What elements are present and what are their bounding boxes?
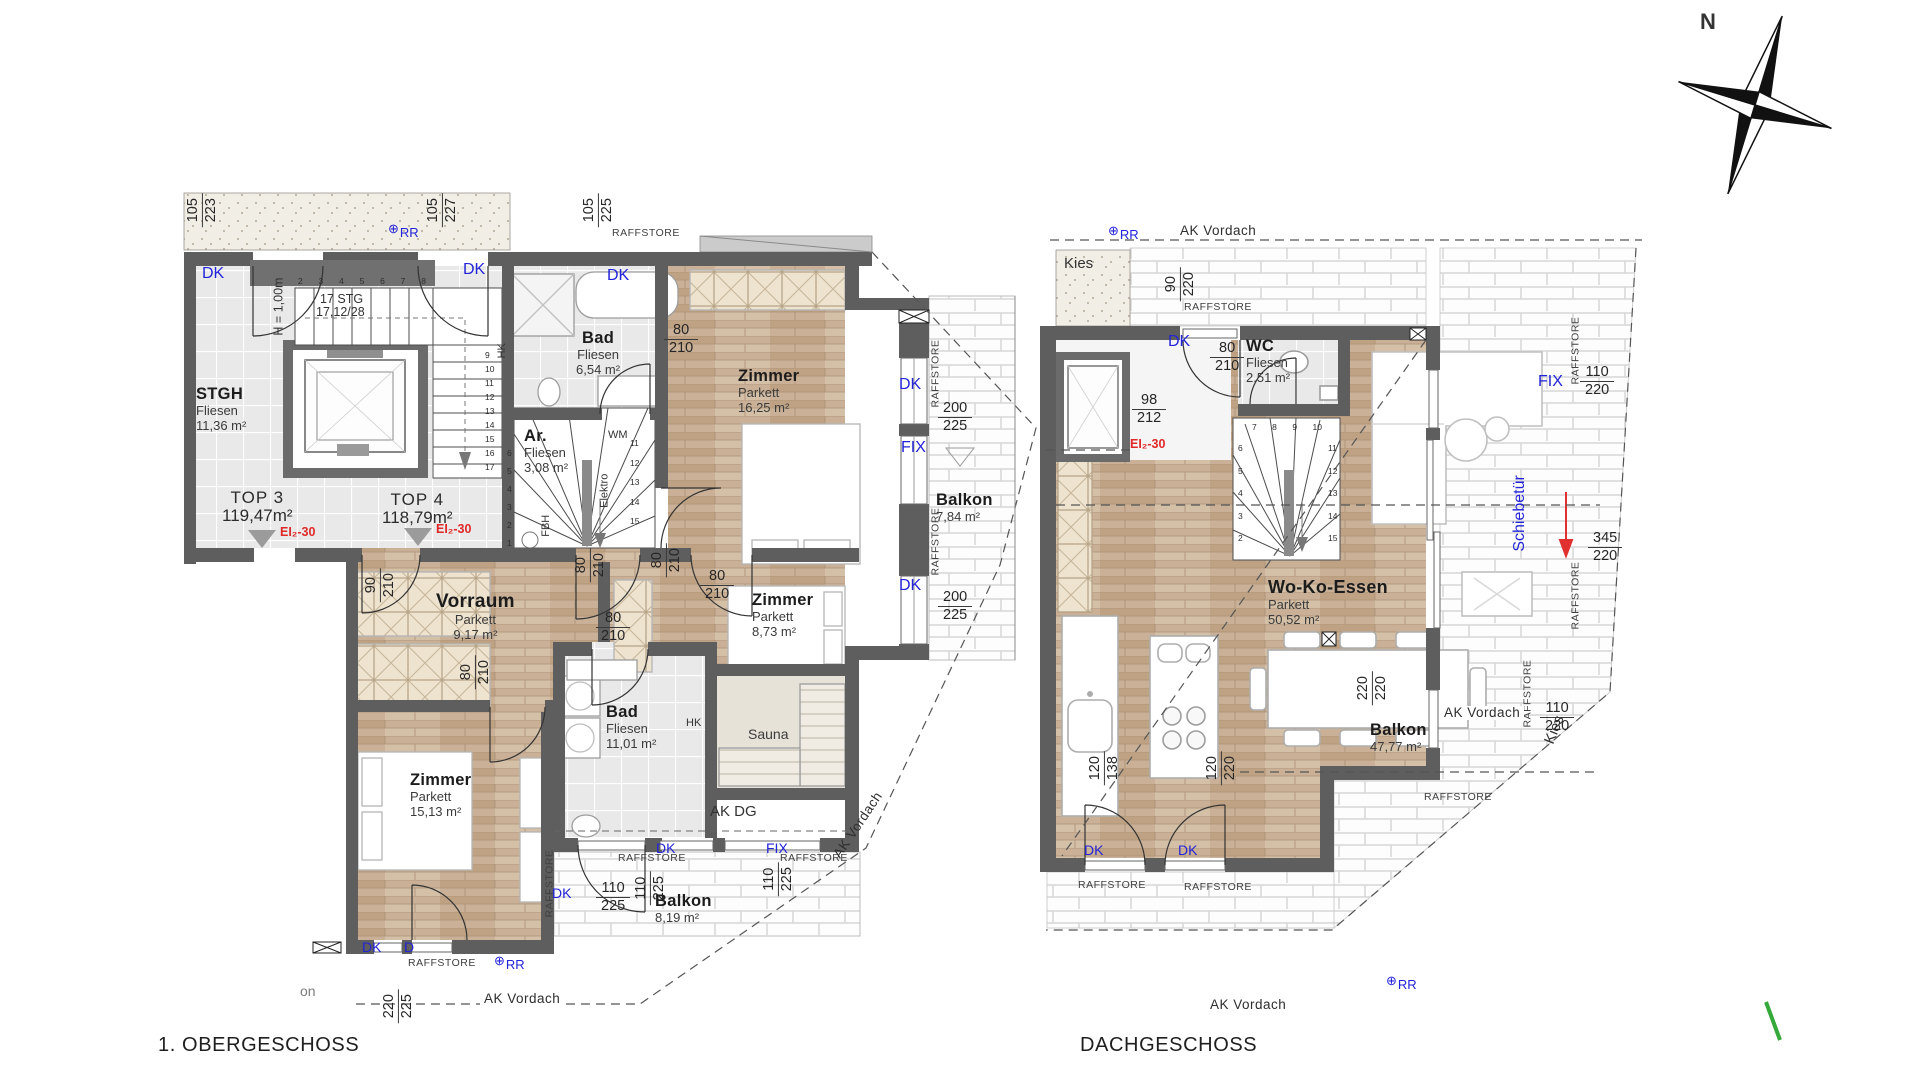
dim-pair: 80210 (700, 568, 734, 602)
door-label-d: D (404, 940, 414, 955)
room-label-vorraum: Vorraum Parkett 9,17 m² (436, 592, 515, 641)
dim-pair: 80210 (458, 655, 492, 689)
room-label-zimmer3: Zimmer Parkett 15,13 m² (410, 772, 471, 819)
stair-number: 9 (485, 350, 490, 360)
raffstore-label: RAFFSTORE (1184, 882, 1252, 893)
compass-north-label: N (1700, 10, 1716, 33)
stair-number: 8 (1272, 422, 1277, 432)
dim-pair: 80210 (596, 610, 630, 644)
stair-number: 10 (1313, 422, 1322, 432)
hk-label: HK (686, 718, 701, 730)
survey-point-icon: ⊕ (494, 954, 505, 968)
vanity-bad2 (567, 660, 637, 680)
stair-number: 13 (1328, 488, 1337, 498)
ak-vordach-label: AK Vordach (1206, 998, 1290, 1012)
stair-number: 2 (507, 520, 512, 530)
window-label-dk: DK (899, 578, 921, 595)
dim-pair: 200225 (938, 589, 972, 623)
rr-point: ⊕RR (1386, 978, 1417, 992)
stair-number: 13 (485, 406, 494, 416)
toilet-bad1 (538, 378, 560, 406)
sliding-door-label: Schiebetür (1512, 475, 1529, 552)
closet-zimmer3 (520, 758, 542, 828)
stair-number: 7 (1252, 422, 1257, 432)
og-spiral-numbers-right: 1112131415 (630, 438, 639, 526)
green-revision-mark (1766, 1002, 1780, 1040)
stair-number: 15 (1328, 533, 1337, 543)
dim-pair: 110220 (1540, 700, 1574, 734)
window-label-dk: DK (899, 377, 921, 394)
raffstore-label: RAFFSTORE (544, 850, 555, 918)
window-label-dk: DK (607, 268, 629, 285)
og-stair-numbers-right: 91011121314151617 (485, 350, 494, 472)
raffstore-label: RAFFSTORE (618, 853, 686, 864)
survey-point-icon: ⊕ (388, 222, 399, 236)
toilet-bad2 (572, 815, 600, 837)
sauna-bench (800, 684, 845, 786)
dim-pair: 105225 (581, 193, 615, 227)
sliding-door-panel (1434, 532, 1440, 628)
stair-number: 11 (630, 438, 639, 448)
side-table-round (1445, 419, 1487, 461)
dim-pair: 98212 (1132, 392, 1166, 426)
stair-number: 6 (507, 448, 512, 458)
raffstore-label: RAFFSTORE (1424, 792, 1492, 803)
room-label-zimmer2: Zimmer Parkett 8,73 m² (752, 592, 813, 639)
dg-stair-numbers-top: 78910 (1252, 422, 1322, 432)
survey-point-icon: ⊕ (1386, 974, 1397, 988)
raffstore-label: RAFFSTORE (1570, 562, 1581, 630)
dim-pair: 220220 (1355, 671, 1389, 705)
raffstore-label: RAFFSTORE (408, 958, 476, 969)
stair-number: 9 (1292, 422, 1297, 432)
stair-number: 12 (630, 458, 639, 468)
island-sink (1158, 644, 1182, 662)
stair-number: 14 (630, 497, 639, 507)
ak-vordach-label: AK Vordach (1176, 224, 1260, 238)
room-label-wke: Wo-Ko-Essen Parkett 50,52 m² (1268, 578, 1388, 626)
stair-number: 4 (507, 484, 512, 494)
og-elevator (283, 340, 428, 478)
room-label-balkon-dg: Balkon 47,77 m² (1370, 722, 1427, 754)
kitchen-sink (1068, 700, 1112, 752)
dim-pair: 345220 (1588, 530, 1622, 564)
island-sink (1186, 644, 1210, 662)
window-label-dk: DK (202, 266, 224, 283)
dim-pair: 220225 (381, 989, 415, 1023)
washer-label: WM (608, 430, 628, 442)
stair-number: 4 (1238, 488, 1243, 498)
window-label-dk: DK (1168, 334, 1190, 351)
stair-number: 15 (485, 434, 494, 444)
dg-title: DACHGESCHOSS (1080, 1035, 1257, 1056)
dim-pair: 80210 (573, 548, 607, 582)
og-stipple-strip (184, 193, 510, 250)
vanity-bad1 (598, 376, 656, 406)
room-label-stgh: STGH Fliesen 11,36 m² (196, 386, 246, 433)
room-label-wc: WC Fliesen 2,51 m² (1246, 338, 1290, 385)
stair-number: 5 (360, 276, 365, 286)
pillow (824, 592, 842, 626)
stair-number: 17 (485, 462, 494, 472)
stair-number: 11 (1328, 443, 1337, 453)
dim-pair: 90220 (1163, 267, 1197, 301)
rr-point: ⊕RR (1108, 228, 1139, 242)
og-spiral-numbers-left: 654321 (507, 448, 512, 548)
cropped-balkon-label: on (300, 984, 316, 999)
dg-stair-numbers-right: 1112131415 (1328, 443, 1337, 543)
elektro-label: Elektro (599, 474, 611, 508)
dg-stair-numbers-left: 65432 (1238, 443, 1243, 543)
stair-number: 12 (1328, 466, 1337, 476)
stair-number: 11 (485, 378, 494, 388)
pillow (824, 630, 842, 664)
dim-pair: 110225 (633, 871, 667, 905)
dim-pair: 200225 (938, 400, 972, 434)
stair-number: 4 (339, 276, 344, 286)
side-table-round-small (1485, 417, 1509, 441)
raffstore-label: RAFFSTORE (1078, 880, 1146, 891)
stair-number: 5 (1238, 466, 1243, 476)
stair-dim-note: 17,12/28 (316, 306, 365, 319)
window-label-dk: DK (362, 940, 381, 955)
room-label-bad2: Bad Fliesen 11,01 m² (606, 704, 656, 751)
stair-number: 3 (1238, 511, 1243, 521)
room-label-zimmer1: Zimmer Parkett 16,25 m² (738, 368, 799, 415)
stair-number: 12 (485, 392, 494, 402)
stair-number: 14 (485, 420, 494, 430)
stair-number: 1 (507, 538, 512, 548)
stair-number: 2 (1238, 533, 1243, 543)
stair-number: 3 (507, 502, 512, 512)
ak-vordach-label: AK Vordach (480, 992, 564, 1006)
sliding-door-panel (1427, 440, 1433, 540)
dim-pair: 80210 (1210, 340, 1244, 374)
dim-pair: 80210 (664, 322, 698, 356)
dim-pair: 105227 (425, 193, 459, 227)
sauna-bench (719, 748, 800, 786)
dim-pair: 80210 (649, 543, 683, 577)
stair-number: 14 (1328, 511, 1337, 521)
dim-pair: 90210 (363, 568, 397, 602)
fire-rating-label: EI₂-30 (280, 526, 315, 539)
ak-dg-label: AK DG (710, 804, 757, 820)
raffstore-label: RAFFSTORE (612, 228, 680, 239)
stair-number: 8 (421, 276, 426, 286)
stair-number: 3 (319, 276, 324, 286)
fire-rating-label: EI₂-30 (1130, 438, 1165, 451)
spiral-newel (582, 460, 592, 546)
floorplan-canvas (0, 0, 1920, 1080)
window-label-fix: FIX (1538, 374, 1563, 391)
raffstore-label: RAFFSTORE (1184, 302, 1252, 313)
dim-pair: 105223 (185, 193, 219, 227)
stair-number: 13 (630, 477, 639, 487)
rr-point: ⊕RR (388, 226, 419, 240)
kies-label: Kies (1064, 256, 1093, 272)
hk-label: HK (497, 343, 509, 358)
dim-pair: 110220 (1580, 364, 1614, 398)
window-label-dk: DK (1084, 843, 1103, 858)
pillow (362, 812, 382, 860)
fbh-label: FBH (541, 515, 553, 537)
room-label-balkon1: Balkon 7,84 m² (936, 492, 993, 524)
raffstore-label: RAFFSTORE (930, 508, 941, 576)
wardrobe-dg (1058, 456, 1092, 612)
rr-point: ⊕RR (494, 958, 525, 972)
survey-point-icon: ⊕ (1108, 224, 1119, 238)
room-label-sauna: Sauna (748, 726, 788, 742)
pillow (362, 758, 382, 806)
parapet-height-note: H = 1,00m (272, 278, 285, 336)
stair-number: 6 (380, 276, 385, 286)
fire-rating-label: EI₂-30 (436, 523, 471, 536)
stair-number: 15 (630, 516, 639, 526)
window-label-fix: FIX (901, 440, 926, 457)
raffstore-label: RAFFSTORE (930, 340, 941, 408)
stair-number: 2 (298, 276, 303, 286)
dim-pair: 110225 (596, 880, 630, 914)
og-stair-numbers-top: 2345678 (298, 276, 426, 286)
window-label-dk: DK (1178, 843, 1197, 858)
stair-number: 6 (1238, 443, 1243, 453)
ak-vordach-label: AK Vordach (1440, 706, 1524, 720)
dg-elevator (1056, 352, 1130, 462)
unit-label-top3: TOP 3 119,47m² (222, 489, 293, 525)
window-label-dk: DK (463, 262, 485, 279)
wardrobe-zimmer1 (690, 270, 845, 310)
elevator-door (327, 350, 383, 358)
room-label-bad1: Bad Fliesen 6,54 m² (576, 330, 620, 377)
sink-wc (1320, 386, 1338, 400)
compass-icon (1651, 0, 1858, 217)
stair-number: 5 (507, 466, 512, 476)
elevator-motor (337, 444, 369, 456)
dim-pair: 110225 (761, 862, 795, 896)
dim-pair: 120220 (1204, 751, 1238, 785)
stair-number: 16 (485, 448, 494, 458)
closet-zimmer3 (520, 832, 542, 902)
dim-pair: 120138 (1087, 751, 1121, 785)
stair-number: 10 (485, 364, 494, 374)
stair-number: 7 (401, 276, 406, 286)
floorplan-sheet: 1. OBERGESCHOSS DACHGESCHOSS N STGH Flie… (0, 0, 1920, 1080)
room-label-ar: Ar. Fliesen 3,08 m² (524, 428, 568, 475)
og-title: 1. OBERGESCHOSS (158, 1035, 359, 1056)
